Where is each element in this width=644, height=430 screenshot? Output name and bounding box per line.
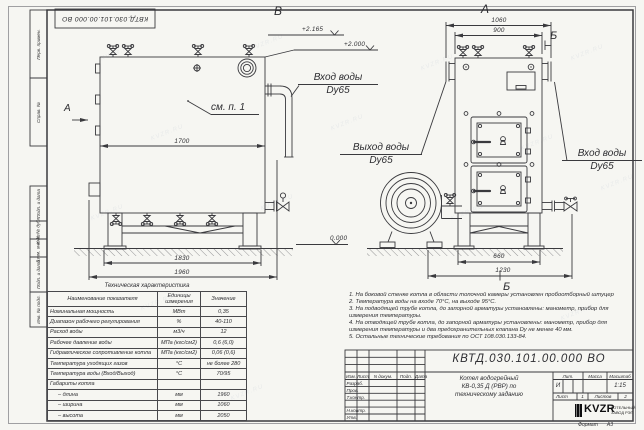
dim-1830: 1830 — [160, 256, 204, 263]
bolt-circles — [464, 112, 534, 167]
boiler-side-view — [74, 45, 294, 257]
table-row: – длинамм1960 — [48, 390, 247, 400]
sign-row-tkontr: Т.контр. — [347, 395, 366, 400]
col-header-units: Единицы измерения — [158, 292, 201, 307]
cell-name: – длина — [48, 390, 158, 400]
dim-1700: 1700 — [160, 139, 204, 146]
filing-stamp: КВТД.030.101.00.000 ВО — [55, 9, 155, 28]
rev-header-list: Лист — [357, 374, 369, 379]
rev-header-izm: Изм. — [345, 374, 357, 379]
sign-row-razrab: Разраб. — [347, 381, 364, 386]
dim-1060: 1060 — [477, 18, 521, 25]
sheet-label: Лист — [556, 394, 568, 399]
elevation-0000: 0.000 — [330, 236, 347, 243]
cell-unit: °С — [158, 358, 201, 368]
note-item: 3. На подводящей трубе котла, до запорно… — [349, 306, 635, 320]
table-row: Рабочее давление водыМПа (кгс/см2)0,6 (6… — [48, 338, 247, 348]
note-item: 5. Остальные технические требования по О… — [349, 334, 635, 341]
lower-door — [471, 166, 531, 212]
dimension-lines — [72, 22, 572, 281]
table-row: – ширинамм1060 — [48, 400, 247, 410]
table-header-row: Наименование показателя Единицы измерени… — [48, 292, 247, 307]
cell-value: 1960 — [201, 390, 247, 400]
cell-unit — [158, 379, 201, 389]
mass-header: Масса — [583, 374, 607, 379]
col-header-name: Наименование показателя — [48, 292, 158, 307]
upper-door — [471, 117, 531, 163]
product-name-line: КВ-0,35 Д (РВР) по — [427, 383, 551, 391]
cell-unit: мм — [158, 400, 201, 410]
dim-1230: 1230 — [481, 268, 525, 275]
cell-value: 1060 — [201, 400, 247, 410]
margin-label-perv-primen: Перв. примен. — [30, 10, 47, 78]
cell-name: Габариты котла — [48, 379, 158, 389]
dim-660: 660 — [477, 254, 521, 261]
doc-number: КВТД.030.101.00.000 ВО — [427, 353, 631, 365]
annotation-dy: Dy65 — [369, 155, 392, 166]
sign-row-prov: Пров. — [347, 388, 359, 393]
annotation-text: Выход воды — [340, 142, 422, 155]
product-name-line: техническому заданию — [427, 391, 551, 399]
annotation-water-inlet-left: Вход воды Dy65 — [298, 72, 378, 96]
cell-unit: °С — [158, 369, 201, 379]
product-name: Котел водогрейный КВ-0,35 Д (РВР) по тех… — [427, 375, 551, 398]
format-label: Формат А3 — [578, 422, 613, 428]
section-arrow-label-a: А — [64, 103, 71, 114]
elevation-2165: +2.165 — [302, 27, 323, 34]
note-item: 2. Температура воды на входе 70°С, на вы… — [349, 299, 635, 306]
cell-value: 40-110 — [201, 317, 247, 327]
dim-900: 900 — [477, 28, 521, 35]
cell-value: 2050 — [201, 410, 247, 420]
cell-name: Гидравлическое сопротивление котла — [48, 348, 158, 358]
lit-value: И — [553, 383, 563, 389]
sign-row-utv: Утв. — [347, 415, 357, 420]
table-row: Расход водым3/ч12 — [48, 327, 247, 337]
cell-name: Температура воды (Вход/Выход) — [48, 369, 158, 379]
cell-value: 0,6 (6,0) — [201, 338, 247, 348]
cell-name: Рабочее давление воды — [48, 338, 158, 348]
cell-name: – высота — [48, 410, 158, 420]
margin-label-vzam-inv: Взам. инв. № — [30, 239, 47, 257]
sheets-label: Листов — [588, 394, 618, 399]
cell-unit: МПа (кгс/см2) — [158, 338, 201, 348]
cell-unit: м3/ч — [158, 327, 201, 337]
cell-unit: МПа (кгс/см2) — [158, 348, 201, 358]
blower-fan — [380, 173, 462, 248]
rev-header-podp: Подп. — [397, 374, 415, 379]
cell-value: 0,35 — [201, 307, 247, 317]
section-label-b-top: Б — [550, 30, 557, 42]
cell-value: не более 280 — [201, 358, 247, 368]
table-row: Диапазон рабочего регулирования%40-110 — [48, 317, 247, 327]
annotation-dy: Dy65 — [326, 85, 349, 96]
rev-header-data: Дата — [415, 374, 425, 379]
sheet-value: 1 — [577, 394, 588, 399]
cell-name: Диапазон рабочего регулирования — [48, 317, 158, 327]
table-row: – высотамм2050 — [48, 410, 247, 420]
cell-unit: мм — [158, 390, 201, 400]
cell-unit: МВт — [158, 307, 201, 317]
cell-name: Температура уходящих газов — [48, 358, 158, 368]
annotation-dy: Dy65 — [590, 161, 613, 172]
tech-table: Наименование показателя Единицы измерени… — [47, 291, 247, 421]
format-value: А3 — [607, 422, 613, 428]
drawing-sheet: KVZR.RU KVZR.RU KVZR.RU KVZR.RU KVZR.RU … — [0, 0, 644, 430]
note-item: 1. На боковой стенке котла в области топ… — [349, 292, 635, 299]
dim-1960: 1960 — [160, 270, 204, 277]
cell-unit: % — [158, 317, 201, 327]
scale-value: 1:15 — [607, 383, 633, 389]
margin-label-podp-data-2: Подп. и дата — [30, 257, 47, 292]
margin-label-sprav-no: Справ. № — [30, 78, 47, 146]
view-label-v: В — [274, 5, 282, 18]
side-valve — [542, 197, 577, 211]
rev-header-dokum: N докум. — [369, 374, 397, 379]
table-row: Температура воды (Вход/Выход)°С70/95 — [48, 369, 247, 379]
cell-name: – ширина — [48, 400, 158, 410]
elevation-2000: +2.000 — [344, 42, 365, 49]
technical-notes: 1. На боковой стенке котла в области топ… — [349, 292, 635, 341]
annotation-text: Вход воды — [562, 148, 642, 161]
table-row: Температура уходящих газов°Сне более 280 — [48, 358, 247, 368]
scale-header: Масштаб — [607, 374, 633, 379]
format-word: Формат — [578, 422, 598, 428]
kvzr-logo-caption: КОТЕЛЬНЫЙ ЗАВОД РЭП — [611, 406, 635, 415]
annotation-text: Вход воды — [298, 72, 378, 85]
cell-name: Расход воды — [48, 327, 158, 337]
table-row: Габариты котла — [48, 379, 247, 389]
tech-table-title: Техническая характеристика — [47, 283, 247, 289]
cell-unit: мм — [158, 410, 201, 420]
table-row: Номинальная мощностьМВт0,35 — [48, 307, 247, 317]
cell-value: 70/95 — [201, 369, 247, 379]
cell-value — [201, 379, 247, 389]
table-row: Гидравлическое сопротивление котлаМПа (к… — [48, 348, 247, 358]
cell-name: Номинальная мощность — [48, 307, 158, 317]
sign-row-nkontr: Н.контр. — [347, 408, 366, 413]
margin-label-inv-podl: Инв. № подл. — [30, 292, 47, 327]
cell-value: 12 — [201, 327, 247, 337]
annotation-water-outlet: Выход воды Dy65 — [340, 142, 422, 166]
note-item: 4. На отводящей трубе котла, до запорной… — [349, 320, 635, 334]
annotation-water-inlet-right: Вход воды Dy65 — [562, 148, 642, 172]
lit-header: Лит. — [553, 374, 583, 379]
see-note-callout: см. п. 1 — [211, 102, 245, 113]
cell-value: 0,06 (0,6) — [201, 348, 247, 358]
view-label-a: А — [481, 3, 489, 16]
sheets-value: 2 — [618, 394, 633, 399]
kvzr-logo-icon — [575, 404, 582, 417]
logo-caption-line: ЗАВОД РЭП — [611, 411, 635, 416]
product-name-line: Котел водогрейный — [427, 375, 551, 383]
col-header-value: Значение — [201, 292, 247, 307]
